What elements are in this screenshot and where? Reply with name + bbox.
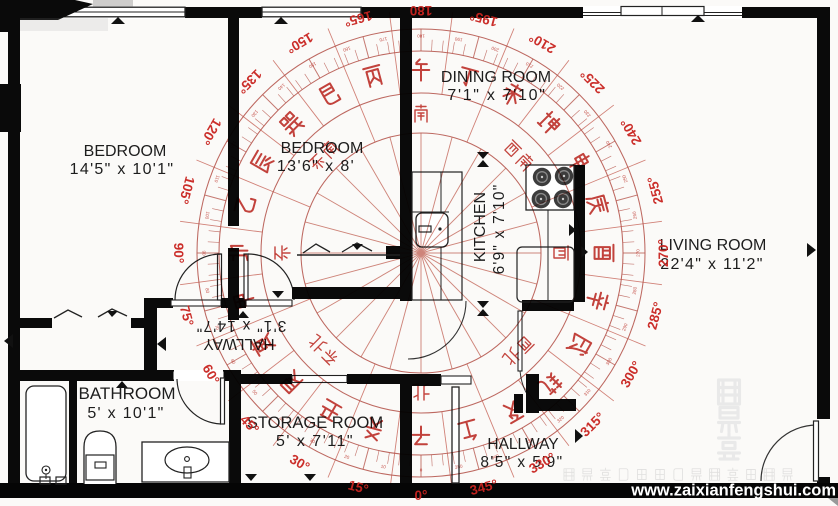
svg-text:14'5" x 10'1": 14'5" x 10'1" [70,161,175,178]
svg-text:180: 180 [417,34,425,39]
svg-text:180: 180 [410,3,433,18]
svg-text:270: 270 [636,249,641,257]
svg-text:STORAGE ROOM: STORAGE ROOM [247,414,383,432]
svg-text:13'6" x 8': 13'6" x 8' [277,158,355,175]
svg-text:6'9" x 7'10": 6'9" x 7'10" [491,184,508,275]
svg-text:www.zaixianfengshui.com: www.zaixianfengshui.com [630,482,836,500]
svg-text:90°: 90° [171,243,186,263]
svg-text:270°: 270° [656,239,671,267]
svg-text:BATHROOM: BATHROOM [79,384,176,403]
svg-text:0: 0 [420,468,423,473]
svg-text:KITCHEN: KITCHEN [472,192,489,262]
svg-text:7'1" x 7'10": 7'1" x 7'10" [447,87,546,104]
svg-text:90: 90 [202,250,207,256]
svg-text:LIVING ROOM: LIVING ROOM [660,237,767,254]
svg-text:0°: 0° [415,488,428,503]
svg-text:22'4" x 11'2": 22'4" x 11'2" [660,256,763,273]
svg-text:5' x 10'1": 5' x 10'1" [87,405,164,422]
svg-text:BEDROOM: BEDROOM [84,143,167,160]
